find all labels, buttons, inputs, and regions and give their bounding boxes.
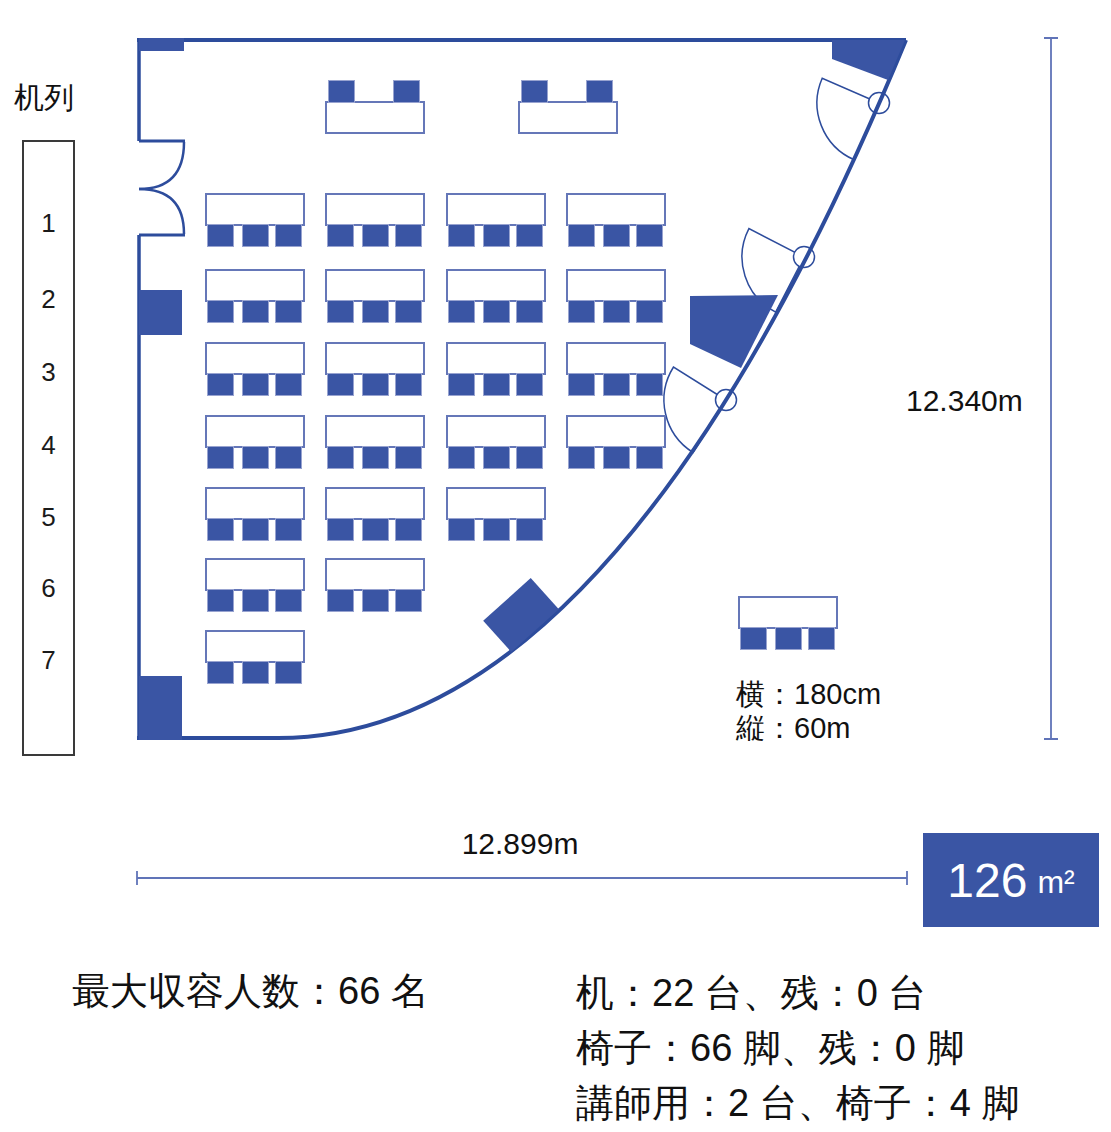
chair bbox=[327, 518, 354, 541]
chair bbox=[207, 300, 234, 323]
chair bbox=[207, 518, 234, 541]
chair bbox=[448, 224, 475, 247]
desk-row-number: 2 bbox=[24, 284, 73, 315]
desk-top bbox=[205, 342, 305, 375]
chair bbox=[775, 627, 802, 650]
chair bbox=[483, 224, 510, 247]
room-area-value: 126 bbox=[947, 853, 1027, 908]
chair bbox=[362, 589, 389, 612]
chair bbox=[362, 373, 389, 396]
chair bbox=[362, 300, 389, 323]
chair bbox=[327, 300, 354, 323]
width-dimension-line bbox=[137, 871, 907, 885]
desk-top bbox=[566, 269, 666, 302]
desk-top bbox=[325, 193, 425, 226]
chair bbox=[275, 224, 302, 247]
door-leaf-arc-icon bbox=[139, 189, 184, 234]
desk-top bbox=[566, 342, 666, 375]
max-capacity-text: 最大収容人数：66 名 bbox=[72, 966, 429, 1017]
chair bbox=[516, 446, 543, 469]
chair bbox=[568, 300, 595, 323]
desk-top bbox=[518, 101, 618, 134]
chair bbox=[242, 446, 269, 469]
chair bbox=[483, 518, 510, 541]
desk-row-index-title: 机列 bbox=[14, 78, 74, 119]
chair bbox=[327, 589, 354, 612]
desk-top bbox=[325, 342, 425, 375]
desk-top bbox=[325, 558, 425, 591]
desk-top bbox=[325, 415, 425, 448]
chair bbox=[362, 446, 389, 469]
chair bbox=[636, 446, 663, 469]
chair bbox=[395, 300, 422, 323]
chair bbox=[483, 300, 510, 323]
floor-plan-page: 机列 1234567 12.340m 12.899m 横：180cm 縦：60m… bbox=[0, 0, 1111, 1132]
lecturer-count-line: 講師用：2 台、椅子：4 脚 bbox=[576, 1076, 1019, 1131]
chair bbox=[740, 627, 767, 650]
desk-top bbox=[205, 193, 305, 226]
desk-row-number: 7 bbox=[24, 645, 73, 676]
desk-top bbox=[566, 415, 666, 448]
desk-top bbox=[446, 342, 546, 375]
desk-row-index-box: 1234567 bbox=[22, 140, 75, 756]
desk-top bbox=[446, 415, 546, 448]
desk-row-number: 6 bbox=[24, 573, 73, 604]
chair bbox=[395, 589, 422, 612]
chair bbox=[521, 80, 548, 103]
desk-row-number: 5 bbox=[24, 502, 73, 533]
chair bbox=[207, 589, 234, 612]
chair bbox=[327, 446, 354, 469]
chair bbox=[603, 300, 630, 323]
chair bbox=[395, 373, 422, 396]
chair bbox=[242, 589, 269, 612]
chair bbox=[395, 446, 422, 469]
desk-top bbox=[446, 269, 546, 302]
curved-wall-doors bbox=[664, 78, 890, 452]
legend-desk-size: 横：180cm 縦：60m bbox=[736, 677, 881, 745]
chair bbox=[636, 224, 663, 247]
chair bbox=[207, 373, 234, 396]
furniture-stats: 机：22 台、残：0 台 椅子：66 脚、残：0 脚 講師用：2 台、椅子：4 … bbox=[576, 966, 1019, 1131]
desk-top bbox=[325, 487, 425, 520]
door-leaf-arc-icon bbox=[139, 142, 184, 189]
desk-top bbox=[205, 558, 305, 591]
chair bbox=[207, 661, 234, 684]
chair bbox=[242, 518, 269, 541]
chair bbox=[242, 373, 269, 396]
desk-row-number: 3 bbox=[24, 357, 73, 388]
chair bbox=[327, 224, 354, 247]
desk-count-line: 机：22 台、残：0 台 bbox=[576, 966, 1019, 1021]
legend-desk-depth: 縦：60m bbox=[736, 711, 881, 745]
chair bbox=[603, 373, 630, 396]
chair bbox=[395, 224, 422, 247]
desk-top bbox=[325, 101, 425, 134]
chair bbox=[275, 300, 302, 323]
bottom-left-pillar bbox=[139, 676, 182, 740]
desk-top bbox=[205, 415, 305, 448]
rotated-door-panel bbox=[483, 578, 559, 652]
desk-top bbox=[738, 596, 838, 629]
chair bbox=[448, 446, 475, 469]
chair bbox=[275, 589, 302, 612]
top-right-wedge bbox=[832, 40, 905, 80]
chair bbox=[362, 224, 389, 247]
chair bbox=[242, 661, 269, 684]
chair bbox=[207, 446, 234, 469]
desk-top bbox=[205, 269, 305, 302]
desk-top bbox=[446, 487, 546, 520]
chair bbox=[275, 518, 302, 541]
desk-top bbox=[325, 269, 425, 302]
chair bbox=[362, 518, 389, 541]
chair bbox=[568, 373, 595, 396]
chair bbox=[275, 373, 302, 396]
chair bbox=[808, 627, 835, 650]
chair bbox=[636, 300, 663, 323]
room-area-unit: m² bbox=[1037, 860, 1074, 901]
floor-plan-drawing bbox=[0, 0, 1111, 1132]
chair bbox=[568, 224, 595, 247]
left-double-door bbox=[139, 142, 184, 234]
width-dimension-label: 12.899m bbox=[380, 827, 660, 861]
chair bbox=[516, 224, 543, 247]
chair bbox=[516, 518, 543, 541]
chair bbox=[448, 300, 475, 323]
chair bbox=[448, 373, 475, 396]
desk-top bbox=[446, 193, 546, 226]
door-swing-icon bbox=[817, 78, 879, 160]
desk-top bbox=[566, 193, 666, 226]
chair bbox=[393, 80, 420, 103]
chair bbox=[395, 518, 422, 541]
chair bbox=[275, 661, 302, 684]
chair bbox=[586, 80, 613, 103]
chair bbox=[448, 518, 475, 541]
chair bbox=[603, 446, 630, 469]
chair bbox=[516, 373, 543, 396]
desk-top bbox=[205, 630, 305, 663]
room-area-badge: 126 m² bbox=[923, 833, 1099, 927]
chair bbox=[483, 373, 510, 396]
chair bbox=[603, 224, 630, 247]
chair bbox=[516, 300, 543, 323]
chair bbox=[207, 224, 234, 247]
chair bbox=[636, 373, 663, 396]
desk-top bbox=[205, 487, 305, 520]
chair bbox=[483, 446, 510, 469]
desk-row-number: 1 bbox=[24, 208, 73, 239]
chair bbox=[568, 446, 595, 469]
chair bbox=[242, 300, 269, 323]
left-pillar bbox=[139, 290, 182, 335]
height-dimension-line bbox=[1044, 38, 1058, 739]
height-dimension-label: 12.340m bbox=[906, 384, 1016, 418]
door-swing-icon bbox=[664, 367, 726, 453]
legend-desk-width: 横：180cm bbox=[736, 677, 881, 711]
chair bbox=[275, 446, 302, 469]
corner-pillar bbox=[139, 38, 184, 51]
chair bbox=[328, 80, 355, 103]
chair bbox=[242, 224, 269, 247]
chair-count-line: 椅子：66 脚、残：0 脚 bbox=[576, 1021, 1019, 1076]
desk-row-number: 4 bbox=[24, 430, 73, 461]
chair bbox=[327, 373, 354, 396]
